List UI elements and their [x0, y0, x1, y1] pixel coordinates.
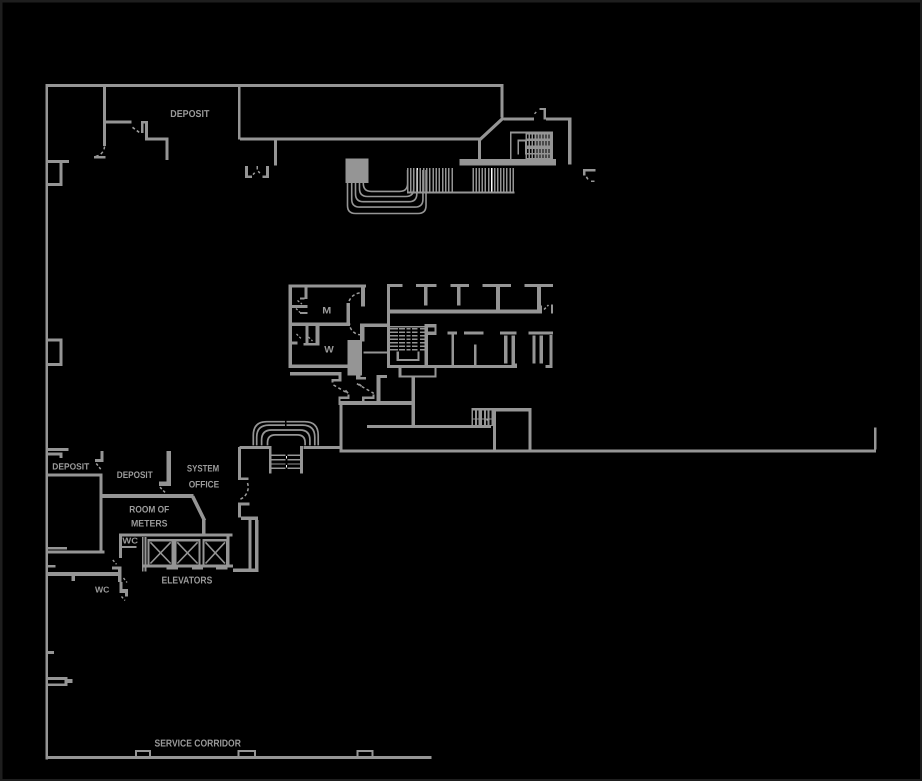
svg-text:M: M: [322, 306, 331, 317]
svg-text:OFFICE: OFFICE: [189, 479, 220, 490]
svg-text:ROOM OF: ROOM OF: [129, 504, 169, 515]
svg-text:W: W: [324, 345, 334, 356]
svg-text:WC: WC: [122, 535, 138, 545]
svg-text:SYSTEM: SYSTEM: [187, 464, 219, 475]
svg-text:DEPOSIT: DEPOSIT: [117, 470, 153, 481]
svg-text:DEPOSIT: DEPOSIT: [52, 461, 89, 471]
svg-text:SERVICE CORRIDOR: SERVICE CORRIDOR: [155, 739, 242, 750]
svg-text:DEPOSIT: DEPOSIT: [170, 109, 209, 120]
svg-text:ELEVATORS: ELEVATORS: [162, 575, 213, 586]
svg-text:METERS: METERS: [131, 518, 168, 529]
svg-text:WC: WC: [95, 584, 109, 594]
